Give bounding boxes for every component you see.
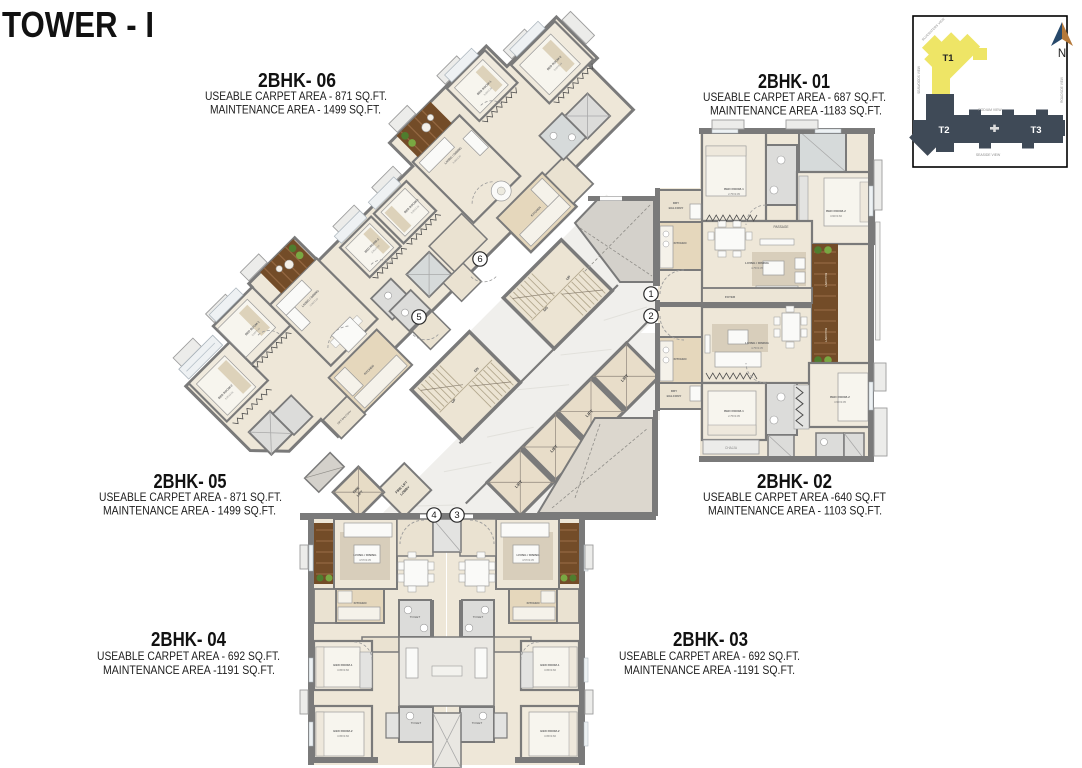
svg-text:BED ROOM-2: BED ROOM-2 (826, 209, 846, 213)
svg-text:USEABLE CARPET AREA - 871 SQ.F: USEABLE CARPET AREA - 871 SQ.FT. (205, 89, 387, 103)
svg-text:4.57X3.35: 4.57X3.35 (359, 558, 371, 562)
svg-text:3.05X3.66: 3.05X3.66 (337, 734, 349, 738)
svg-text:3.05X3.66: 3.05X3.66 (544, 734, 556, 738)
svg-text:BALCONY: BALCONY (824, 328, 828, 342)
svg-text:BALCONY: BALCONY (824, 273, 828, 287)
svg-text:2.75X3.05: 2.75X3.05 (728, 414, 740, 418)
svg-text:2.75X3.05: 2.75X3.05 (728, 192, 740, 196)
svg-text:N: N (1058, 48, 1066, 60)
svg-text:4.75X3.35: 4.75X3.35 (751, 346, 763, 350)
svg-text:3.60X3.66: 3.60X3.66 (830, 214, 842, 218)
svg-text:BED ROOM-2: BED ROOM-2 (333, 729, 352, 733)
svg-text:DRY: DRY (673, 201, 679, 205)
svg-text:KITCHEN: KITCHEN (527, 601, 540, 605)
svg-text:USEABLE CARPET AREA - 692 SQ.F: USEABLE CARPET AREA - 692 SQ.FT. (619, 649, 800, 663)
svg-text:BED ROOM-1: BED ROOM-1 (540, 663, 559, 667)
svg-text:TOILET: TOILET (410, 615, 421, 619)
svg-text:TOILET: TOILET (411, 721, 422, 725)
svg-text:MAINTENANCE AREA -1191 SQ.FT.: MAINTENANCE AREA -1191 SQ.FT. (103, 663, 275, 677)
svg-text:5: 5 (416, 312, 421, 323)
svg-text:3: 3 (454, 510, 459, 521)
svg-text:MAINTENANCE AREA -1183 SQ.FT.: MAINTENANCE AREA -1183 SQ.FT. (710, 104, 882, 118)
svg-text:T3: T3 (1030, 125, 1041, 136)
svg-text:4.75X3.35: 4.75X3.35 (751, 266, 763, 270)
svg-text:SEASIDE VIEW: SEASIDE VIEW (976, 153, 1001, 157)
svg-text:2BHK- 04: 2BHK- 04 (151, 628, 226, 651)
svg-text:BED ROOM-2: BED ROOM-2 (830, 395, 850, 399)
svg-text:KITCHEN: KITCHEN (674, 357, 687, 361)
svg-text:FOYER: FOYER (725, 295, 736, 299)
svg-text:T2: T2 (938, 125, 949, 136)
svg-text:KITCHEN: KITCHEN (354, 601, 367, 605)
svg-text:LIVING / DINING: LIVING / DINING (745, 261, 769, 265)
svg-text:MAINTENANCE AREA - 1103 SQ.FT: MAINTENANCE AREA - 1103 SQ.FT. (708, 504, 882, 518)
svg-text:MAINTENANCE AREA - 1499 SQ.FT.: MAINTENANCE AREA - 1499 SQ.FT. (103, 504, 276, 518)
svg-text:CHAJJA: CHAJJA (725, 446, 738, 450)
svg-text:3.05X3.66: 3.05X3.66 (544, 668, 556, 672)
svg-text:MAINTENANCE AREA - 1499 SQ.FT.: MAINTENANCE AREA - 1499 SQ.FT. (210, 103, 381, 117)
svg-text:PASSAGE: PASSAGE (774, 225, 789, 229)
svg-text:1: 1 (648, 289, 653, 300)
svg-text:4.57X3.35: 4.57X3.35 (522, 558, 534, 562)
svg-text:KITCHEN: KITCHEN (674, 241, 687, 245)
svg-text:MAINTENANCE AREA -1191 SQ.FT.: MAINTENANCE AREA -1191 SQ.FT. (624, 663, 795, 677)
svg-text:3.60X3.05: 3.60X3.05 (834, 400, 846, 404)
svg-text:BALCONY: BALCONY (669, 206, 684, 210)
svg-text:BED ROOM-1: BED ROOM-1 (724, 187, 744, 191)
svg-text:USEABLE CARPET AREA - 687 SQ.F: USEABLE CARPET AREA - 687 SQ.FT. (703, 90, 886, 104)
svg-text:2: 2 (648, 311, 653, 322)
svg-text:DRY: DRY (671, 389, 677, 393)
svg-text:BED ROOM-2: BED ROOM-2 (540, 729, 559, 733)
svg-text:TOILET: TOILET (473, 615, 484, 619)
svg-text:BALCONY: BALCONY (667, 394, 682, 398)
svg-text:ROADSIDE VIEW: ROADSIDE VIEW (1060, 77, 1064, 103)
svg-text:3.05X3.66: 3.05X3.66 (337, 668, 349, 672)
svg-text:USEABLE CARPET AREA - 871 SQ.F: USEABLE CARPET AREA - 871 SQ.FT. (99, 490, 282, 504)
svg-text:4: 4 (431, 510, 436, 521)
svg-text:PODIUM VIEW: PODIUM VIEW (978, 108, 1002, 112)
svg-text:BED ROOM-1: BED ROOM-1 (333, 663, 352, 667)
svg-text:6: 6 (477, 254, 482, 265)
svg-text:SEAWOODS VIEW: SEAWOODS VIEW (917, 66, 921, 94)
svg-text:TOWER - I: TOWER - I (2, 4, 154, 45)
svg-text:BED ROOM-1: BED ROOM-1 (724, 409, 744, 413)
svg-text:USEABLE CARPET AREA -640 SQ.FT: USEABLE CARPET AREA -640 SQ.FT (703, 490, 887, 504)
svg-text:TOILET: TOILET (472, 721, 483, 725)
svg-text:LIVING / DINING: LIVING / DINING (745, 341, 769, 345)
svg-text:2BHK- 03: 2BHK- 03 (673, 628, 748, 651)
svg-text:USEABLE CARPET AREA - 692 SQ.F: USEABLE CARPET AREA - 692 SQ.FT. (97, 649, 280, 663)
svg-text:LIVING / DINING: LIVING / DINING (353, 553, 377, 557)
svg-text:LIVING / DINING: LIVING / DINING (516, 553, 540, 557)
svg-text:T1: T1 (942, 53, 954, 64)
